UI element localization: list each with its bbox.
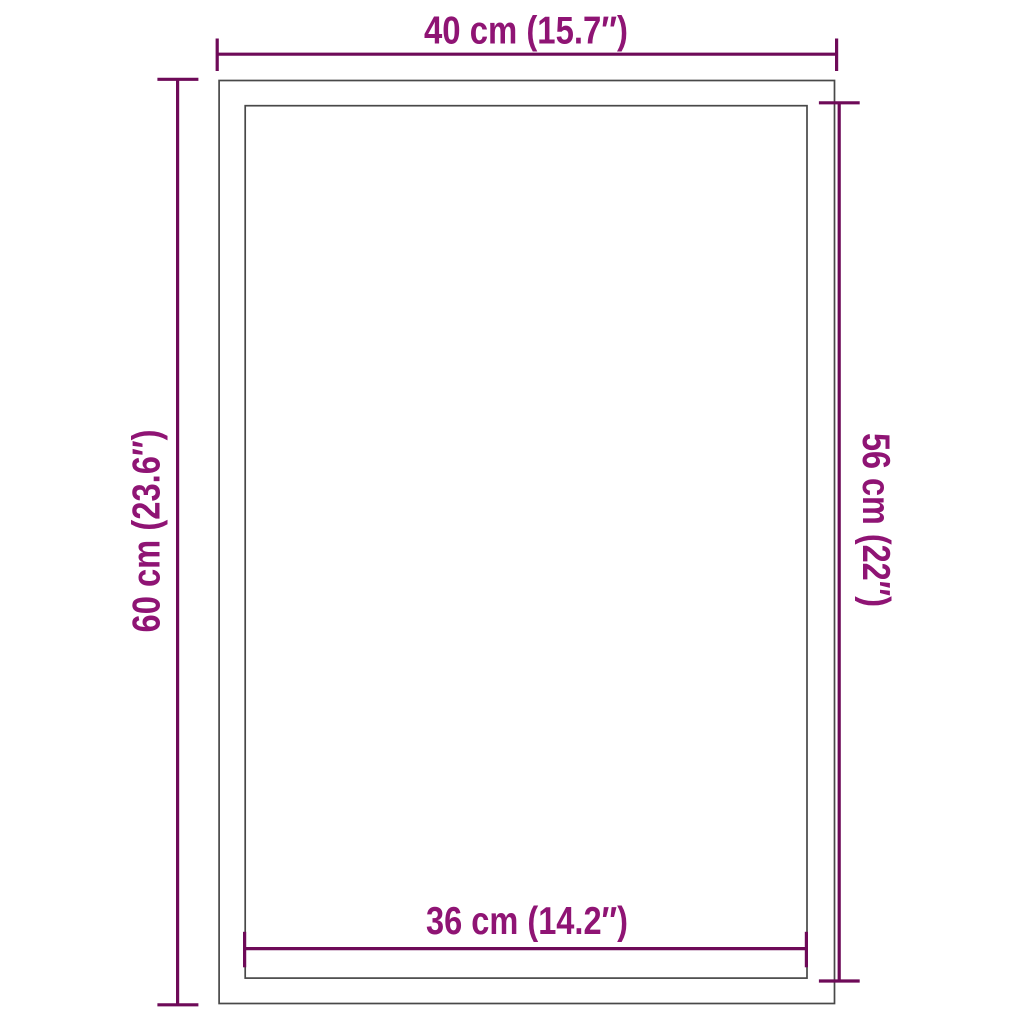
svg-text:36 cm (14.2″): 36 cm (14.2″) xyxy=(426,900,628,943)
svg-text:60 cm (23.6″): 60 cm (23.6″) xyxy=(126,430,169,633)
svg-text:40 cm (15.7″): 40 cm (15.7″) xyxy=(424,9,628,52)
svg-text:56 cm (22″): 56 cm (22″) xyxy=(854,433,897,607)
